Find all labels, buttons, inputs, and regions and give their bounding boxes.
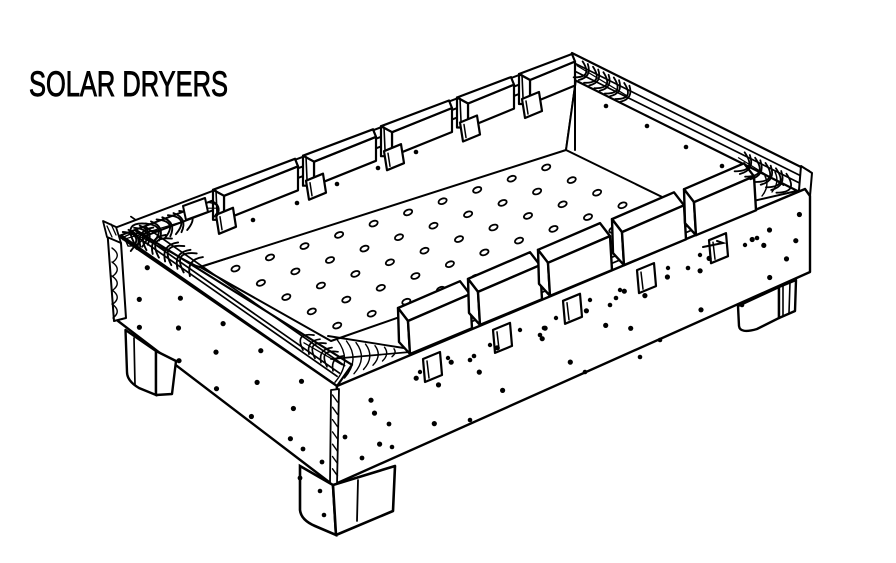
- svg-text:SOLAR DRYERS: SOLAR DRYERS: [29, 64, 228, 104]
